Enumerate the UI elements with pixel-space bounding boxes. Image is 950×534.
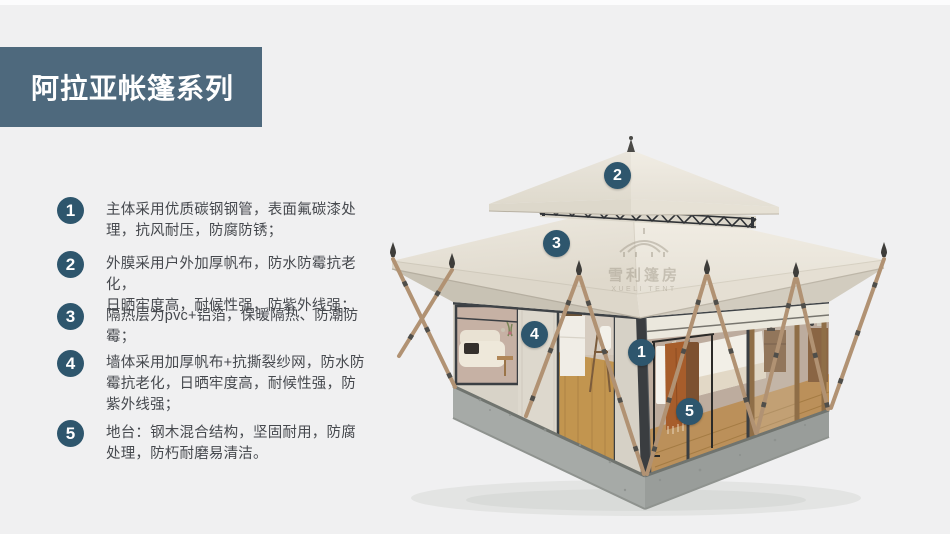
tent-callout-4: 4 <box>521 321 548 348</box>
tent-roof-upper <box>489 136 779 215</box>
tent-callout-5: 5 <box>676 398 703 425</box>
roof-finial <box>627 139 635 152</box>
tent-callout-1: 1 <box>628 339 655 366</box>
slide-canvas: 阿拉亚帐篷系列 1 主体采用优质碳钢钢管，表面氟碳漆处 理，抗风耐压，防腐防锈；… <box>0 0 950 534</box>
tent-callout-3: 3 <box>543 230 570 257</box>
tent-callout-2: 2 <box>604 162 631 189</box>
tent-illustration <box>0 0 950 534</box>
